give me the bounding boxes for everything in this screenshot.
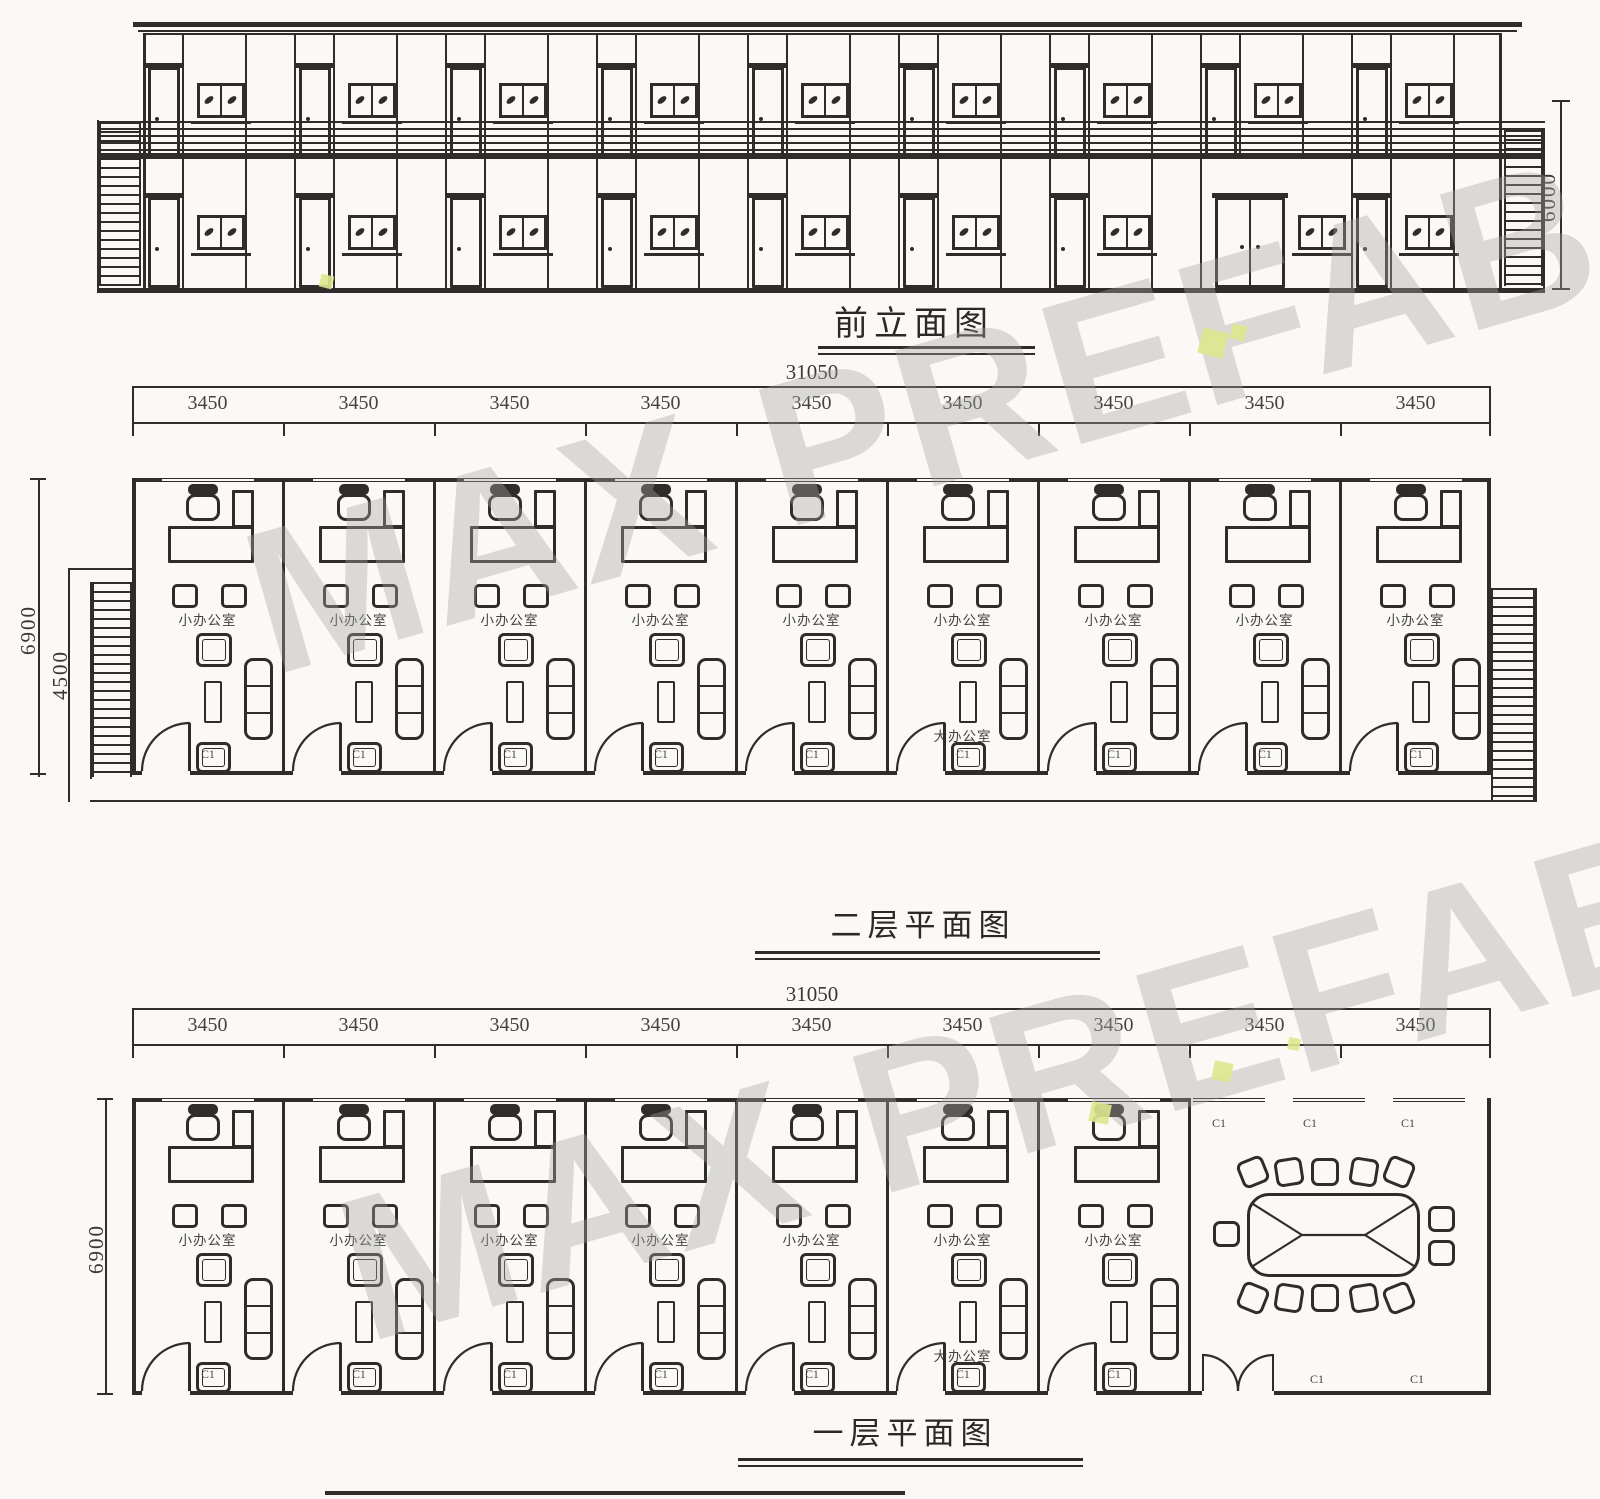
office-top-window: [917, 1098, 1009, 1102]
sofa: [697, 1278, 726, 1360]
conference-chair: [1235, 1280, 1271, 1316]
desk-chair: [186, 1114, 220, 1141]
office-partition-wall: [735, 1098, 738, 1395]
desk-chair: [790, 1114, 824, 1141]
depth-dim-tick: [97, 1098, 113, 1100]
conference-chair: [1273, 1156, 1305, 1188]
floor1-dim-tick: [887, 1044, 889, 1058]
floor2-total-dimension: 31050: [687, 360, 937, 385]
floor1-bay-dimension: 3450: [736, 1014, 887, 1037]
guest-chair: [825, 1204, 851, 1228]
floor1-bay-dimension: 3450: [1038, 1014, 1189, 1037]
guest-chair: [625, 1204, 651, 1228]
office-label: 小办公室: [434, 1229, 585, 1249]
guest-chair: [474, 1204, 500, 1228]
office-desk: [319, 1146, 405, 1183]
door-swing-arc: [142, 1343, 190, 1391]
conference-chair: [1428, 1240, 1455, 1266]
conference-chair: [1311, 1158, 1339, 1186]
sofa-cushion-line: [1152, 1305, 1177, 1307]
armchair-seat: [957, 1259, 981, 1281]
guest-chair: [372, 1204, 398, 1228]
door-leaf: [792, 1343, 795, 1391]
office-unit: 小办公室C1: [1038, 1098, 1189, 1395]
guest-chair: [1127, 1204, 1153, 1228]
office-top-window: [615, 1098, 707, 1102]
floor1-bay-dimension: 3450: [434, 1014, 585, 1037]
guest-chair: [776, 1204, 802, 1228]
desk-return: [1138, 1110, 1160, 1148]
architectural-drawing-sheet: MAX PREFAB MAX PREFAB 345034503450345034…: [0, 0, 1600, 1499]
sofa-cushion-line: [397, 1305, 422, 1307]
window-type-label: C1: [1287, 1372, 1347, 1387]
floor1-dim-tick: [283, 1044, 285, 1058]
sofa: [1150, 1278, 1179, 1360]
floor1-dim-tick: [1489, 1044, 1491, 1058]
sofa-cushion-line: [850, 1332, 875, 1334]
office-desk: [621, 1146, 707, 1183]
floor1-total-dim-line: [132, 1008, 1491, 1010]
door-swing-arc: [1048, 1343, 1096, 1391]
office-partition-wall: [282, 1098, 285, 1395]
coffee-table: [1110, 1301, 1128, 1343]
desk-chair: [337, 1114, 371, 1141]
desk-return: [383, 1110, 405, 1148]
sofa-cushion-line: [548, 1332, 573, 1334]
floor1-dim-tick: [1038, 1044, 1040, 1058]
window-type-label: C1: [1189, 1116, 1249, 1131]
sofa-cushion-line: [1001, 1332, 1026, 1334]
conference-chair: [1381, 1280, 1417, 1316]
sofa-cushion-line: [850, 1305, 875, 1307]
armchair-seat: [353, 1259, 377, 1281]
office-bottom-wall: [190, 1391, 283, 1395]
floor1-dim-tick: [736, 1044, 738, 1058]
office-label: 小办公室: [1038, 1229, 1189, 1249]
office-unit: 小办公室C1: [434, 1098, 585, 1395]
armchair-seat: [655, 1259, 679, 1281]
conference-chair: [1235, 1154, 1271, 1190]
door-leaf: [188, 1343, 191, 1391]
room-bottom-wall: [1274, 1391, 1491, 1395]
sofa-cushion-line: [699, 1332, 724, 1334]
office-desk: [470, 1146, 556, 1183]
office-partition-wall: [1037, 1098, 1040, 1395]
floor1-title-underline: [738, 1458, 1083, 1461]
conference-chair: [1381, 1154, 1417, 1190]
guest-chair: [1078, 1204, 1104, 1228]
office-unit: 小办公室C1: [283, 1098, 434, 1395]
office-label: 小办公室: [585, 1229, 736, 1249]
office-unit: 小办公室C1: [585, 1098, 736, 1395]
armchair-seat: [202, 1259, 226, 1281]
room-bottom-wall: [1189, 1391, 1202, 1395]
door-leaf: [943, 1343, 946, 1391]
office-unit: 小办公室大办公室C1: [887, 1098, 1038, 1395]
office-unit: 小办公室C1: [132, 1098, 283, 1395]
coffee-table: [657, 1301, 675, 1343]
office-bottom-wall: [1096, 1391, 1189, 1395]
floor1-bay-dimension: 3450: [585, 1014, 736, 1037]
conference-chair: [1348, 1282, 1380, 1314]
office-label: 小办公室: [132, 1229, 283, 1249]
floor1-bay-dimension: 3450: [1189, 1014, 1340, 1037]
desk-return: [232, 1110, 254, 1148]
door-swing-arc: [293, 1343, 341, 1391]
door-leaf: [641, 1343, 644, 1391]
door-swing-arc: [1202, 1355, 1238, 1391]
floor2-title-underline: [755, 951, 1100, 954]
sofa: [244, 1278, 273, 1360]
conference-table-lines: [1250, 1196, 1417, 1274]
door-leaf: [1094, 1343, 1097, 1391]
door-swing-arc: [1238, 1355, 1274, 1391]
door-swing-arc: [897, 1343, 945, 1391]
office-top-window: [1193, 1098, 1265, 1102]
office-desk: [772, 1146, 858, 1183]
floor1-bay-dimension: 3450: [283, 1014, 434, 1037]
sofa-cushion-line: [548, 1305, 573, 1307]
watermark-pixel: [1211, 1060, 1234, 1083]
floor1-title-underline: [738, 1465, 1083, 1467]
door-leaf: [1272, 1355, 1274, 1391]
guest-chair: [221, 1204, 247, 1228]
office-top-window: [464, 1098, 556, 1102]
office-bottom-wall: [341, 1391, 434, 1395]
guest-chair: [323, 1204, 349, 1228]
floor1-total-dimension: 31050: [687, 982, 937, 1007]
depth-dim-line: [105, 1098, 107, 1395]
sofa-cushion-line: [1152, 1332, 1177, 1334]
guest-chair: [976, 1204, 1002, 1228]
floor1-dim-tick: [1340, 1044, 1342, 1058]
floor1-dim-tick: [132, 1044, 134, 1058]
window-type-label: C1: [1280, 1116, 1340, 1131]
office-partition-wall: [433, 1098, 436, 1395]
office-partition-wall: [886, 1098, 889, 1395]
elevation-title-underline: [818, 353, 1035, 355]
coffee-table: [355, 1301, 373, 1343]
office-top-window: [162, 1098, 254, 1102]
watermark-pixel: [1287, 1037, 1301, 1051]
sofa-cushion-line: [1001, 1305, 1026, 1307]
window-type-label: C1: [1387, 1372, 1447, 1387]
floor1-dim-tick: [1189, 1044, 1191, 1058]
door-swing-arc: [595, 1343, 643, 1391]
office-desk: [168, 1146, 254, 1183]
office-desk: [923, 1146, 1009, 1183]
conference-room: C1C1C1C1C1: [1189, 1098, 1491, 1395]
floor2-title-underline: [755, 958, 1100, 960]
sofa-cushion-line: [246, 1332, 271, 1334]
desk-return: [987, 1110, 1009, 1148]
sofa-cushion-line: [246, 1305, 271, 1307]
door-swing-arc: [444, 1343, 492, 1391]
coffee-table: [959, 1301, 977, 1343]
sofa-cushion-line: [397, 1332, 422, 1334]
office-label: 小办公室: [736, 1229, 887, 1249]
floor1-bay-dimension: 3450: [887, 1014, 1038, 1037]
conference-chair: [1428, 1206, 1455, 1232]
depth-dim-tick: [97, 1393, 113, 1395]
office-bottom-wall: [643, 1391, 736, 1395]
desk-return: [685, 1110, 707, 1148]
floor1-dim-tick: [434, 1044, 436, 1058]
sofa: [546, 1278, 575, 1360]
guest-chair: [523, 1204, 549, 1228]
sofa-cushion-line: [699, 1305, 724, 1307]
coffee-table: [506, 1301, 524, 1343]
office-desk: [1074, 1146, 1160, 1183]
desk-return: [836, 1110, 858, 1148]
armchair-seat: [806, 1259, 830, 1281]
floor1-dim-tick: [585, 1044, 587, 1058]
armchair-seat: [504, 1259, 528, 1281]
office-partition-wall: [584, 1098, 587, 1395]
door-swing-arc: [746, 1343, 794, 1391]
desk-return: [534, 1110, 556, 1148]
office-top-window: [313, 1098, 405, 1102]
office-bottom-wall: [492, 1391, 585, 1395]
sofa: [848, 1278, 877, 1360]
conference-chair: [1311, 1284, 1339, 1312]
door-leaf: [339, 1343, 342, 1391]
floor1-bay-dimension: 3450: [132, 1014, 283, 1037]
office-bottom-wall: [132, 1391, 142, 1395]
office-top-window: [1393, 1098, 1465, 1102]
office-top-window: [1068, 1098, 1160, 1102]
office-label: 小办公室: [283, 1229, 434, 1249]
office-unit: 小办公室C1: [736, 1098, 887, 1395]
conference-chair: [1273, 1282, 1305, 1314]
guest-chair: [674, 1204, 700, 1228]
guest-chair: [172, 1204, 198, 1228]
desk-chair: [488, 1114, 522, 1141]
desk-chair: [941, 1114, 975, 1141]
conference-chair: [1213, 1221, 1240, 1247]
office-top-window: [1293, 1098, 1365, 1102]
conference-chair: [1348, 1156, 1380, 1188]
first-floor-plan-drawing: 345034503450345034503450345034503450小办公室…: [0, 0, 1600, 1499]
door-leaf: [1202, 1355, 1204, 1391]
office-bottom-wall: [794, 1391, 887, 1395]
elevation-title-underline: [818, 346, 1035, 349]
guest-chair: [927, 1204, 953, 1228]
coffee-table: [808, 1301, 826, 1343]
watermark-pixel: [1088, 1101, 1112, 1125]
door-leaf: [490, 1343, 493, 1391]
armchair-seat: [1108, 1259, 1132, 1281]
window-type-label: C1: [1378, 1116, 1438, 1131]
desk-chair: [639, 1114, 673, 1141]
sofa: [395, 1278, 424, 1360]
coffee-table: [204, 1301, 222, 1343]
office-top-window: [766, 1098, 858, 1102]
office-bottom-wall: [945, 1391, 1038, 1395]
office-label: 小办公室: [887, 1229, 1038, 1249]
floor1-bay-dimension: 3450: [1340, 1014, 1491, 1037]
